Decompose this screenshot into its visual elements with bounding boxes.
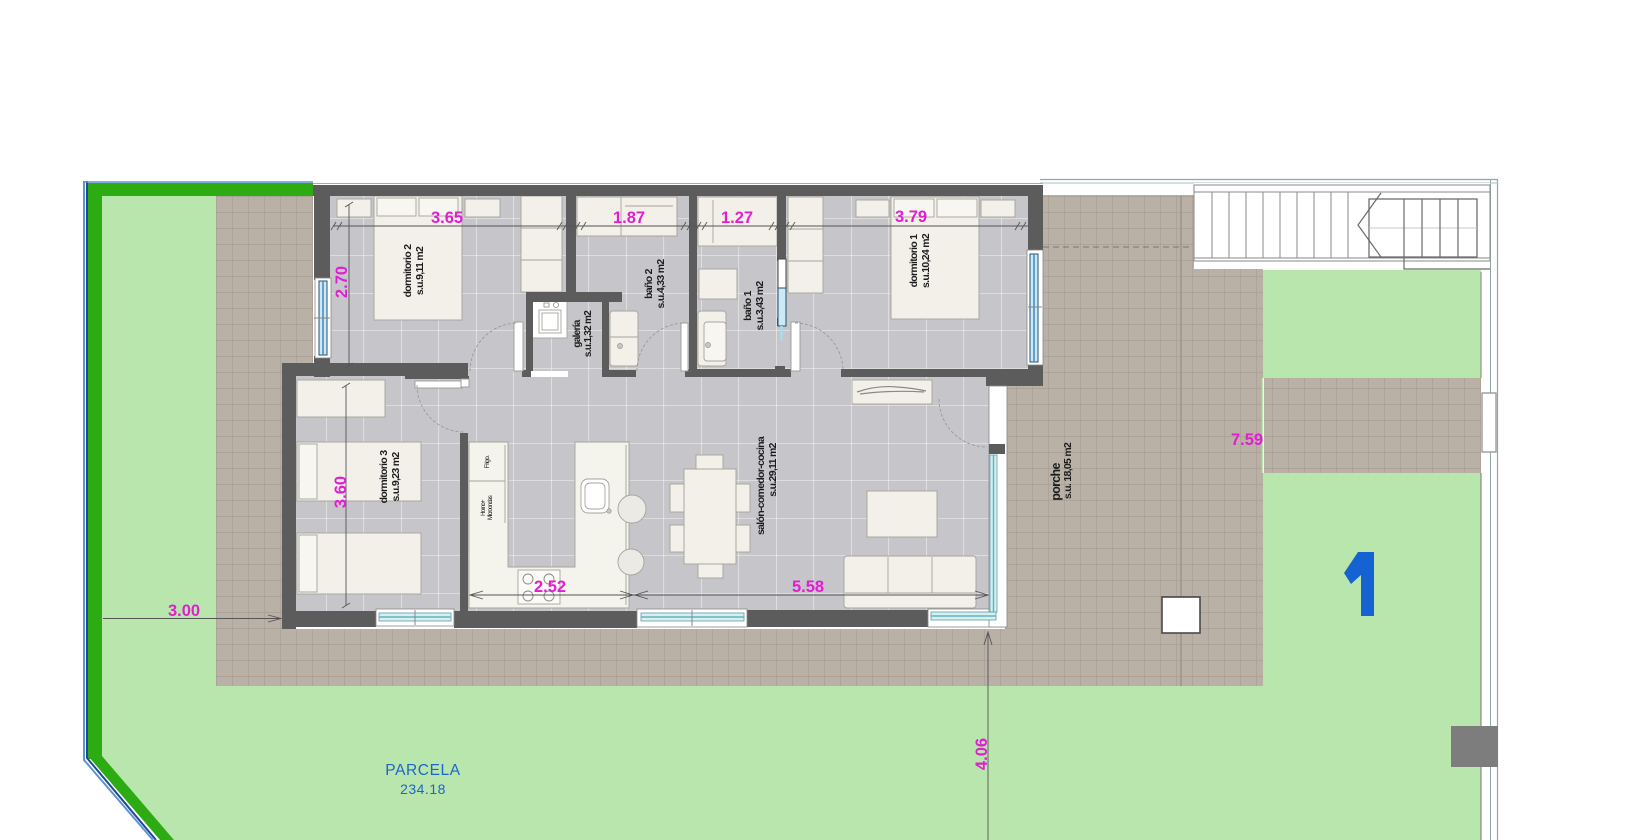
svg-text:baño 2: baño 2 [643, 268, 655, 298]
svg-text:Microondas: Microondas [488, 495, 494, 520]
svg-text:galería: galería [572, 319, 583, 347]
svg-text:s.u. 18,05 m2: s.u. 18,05 m2 [1062, 442, 1074, 499]
svg-text:dormitorio 1: dormitorio 1 [908, 234, 920, 288]
svg-text:s.u.9,11 m2: s.u.9,11 m2 [414, 246, 426, 295]
svg-text:dormitorio 3: dormitorio 3 [378, 450, 390, 504]
svg-text:s.u.4,33 m2: s.u.4,33 m2 [655, 259, 667, 309]
svg-text:234.18: 234.18 [400, 781, 446, 797]
svg-text:Horno+: Horno+ [481, 499, 487, 516]
svg-text:porche: porche [1049, 463, 1063, 501]
svg-text:s.u.9,23 m2: s.u.9,23 m2 [390, 452, 402, 502]
svg-text:Frigo.: Frigo. [484, 455, 491, 468]
svg-text:3.79: 3.79 [895, 208, 927, 226]
svg-text:PARCELA: PARCELA [385, 762, 460, 779]
svg-text:s.u.1,32 m2: s.u.1,32 m2 [583, 310, 594, 357]
svg-text:3.60: 3.60 [332, 476, 350, 508]
svg-text:3.65: 3.65 [431, 209, 463, 227]
svg-text:dormitorio 2: dormitorio 2 [402, 244, 414, 298]
svg-text:s.u.10,24 m2: s.u.10,24 m2 [920, 233, 932, 288]
svg-text:2.52: 2.52 [534, 578, 566, 596]
svg-text:4.06: 4.06 [973, 738, 991, 770]
svg-text:2.70: 2.70 [333, 266, 351, 298]
svg-text:s.u.29,11 m2: s.u.29,11 m2 [767, 442, 779, 496]
svg-text:s.u.3,43 m2: s.u.3,43 m2 [754, 281, 766, 331]
svg-text:5.58: 5.58 [792, 578, 824, 596]
svg-text:salón-comedor-cocina: salón-comedor-cocina [755, 436, 767, 535]
svg-text:baño 1: baño 1 [742, 290, 754, 320]
svg-text:3.00: 3.00 [168, 602, 200, 620]
svg-text:1.87: 1.87 [613, 209, 645, 227]
svg-text:1.27: 1.27 [721, 209, 753, 227]
svg-text:7.59: 7.59 [1231, 431, 1263, 449]
